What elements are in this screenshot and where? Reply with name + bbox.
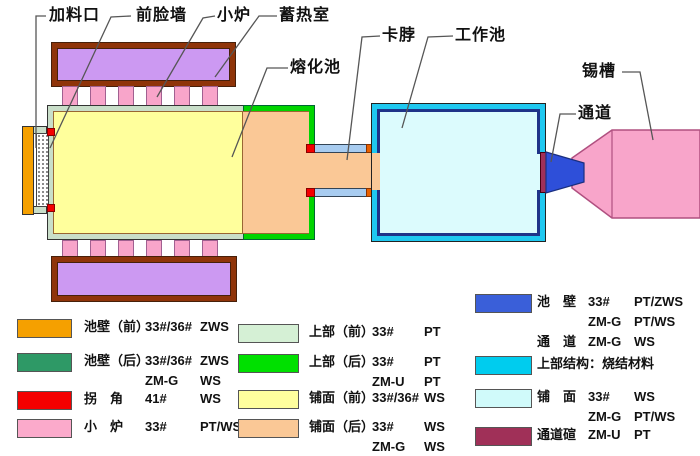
legend-name: 通 道 — [537, 332, 588, 352]
bottom-regenerator — [52, 257, 236, 301]
legend-grade: ZM-U — [588, 425, 634, 445]
port-top-5 — [174, 86, 190, 106]
legend-name: 上部（后） — [309, 352, 372, 372]
channel-arch-block — [540, 152, 547, 193]
legend-swatch — [238, 324, 299, 343]
legend-name: 池壁（前） — [84, 317, 145, 337]
legend-grade: 33# — [372, 417, 424, 437]
label-regenerator: 蓄热室 — [279, 7, 330, 25]
feed-connector-bottom — [33, 206, 47, 214]
label-tin-bath: 锡槽 — [582, 63, 616, 81]
port-bottom-5 — [174, 240, 190, 257]
working-tank-inlet-opening — [372, 153, 380, 190]
legend-name: 池 壁 — [537, 292, 588, 312]
legend-name — [84, 371, 145, 391]
port-bottom-1 — [62, 240, 78, 257]
melting-tank-paving-rear — [243, 111, 309, 234]
channel-shape — [546, 152, 584, 193]
port-top-1 — [62, 86, 78, 106]
legend-swatch — [17, 353, 72, 372]
port-bottom-6 — [202, 240, 218, 257]
legend-name: 铺面（前） — [309, 388, 372, 408]
legend-grade — [588, 354, 634, 374]
glass-furnace-diagram: 加料口 前脸墙 小炉 蓄热室 熔化池 卡脖 工作池 锡槽 通道 池壁（前） 33… — [0, 0, 700, 456]
legend-row-wt-paving: 铺 面 33# WS ZM-G PT/WS — [475, 387, 675, 427]
top-regenerator — [52, 43, 235, 86]
legend-row-superstructure: 上部结构：烧结材料 — [475, 354, 634, 375]
legend-type: PT/WS — [634, 407, 675, 427]
legend-row-upper-rear: 上部（后） 33# PT ZM-U PT — [238, 352, 441, 392]
label-melting-tank: 熔化池 — [290, 59, 341, 77]
legend-type: WS — [634, 332, 655, 352]
port-top-4 — [146, 86, 162, 106]
legend-swatch — [238, 419, 299, 438]
legend-row-small-furnace: 小 炉 33# PT/WS — [17, 417, 241, 438]
leader-tin-bath — [622, 72, 653, 140]
legend-name: 池壁（后） — [84, 351, 145, 371]
legend-name — [537, 407, 588, 427]
neck-wall-top — [314, 144, 368, 153]
legend-type: WS — [424, 417, 445, 437]
legend-row-paving-front: 铺面（前） 33#/36# WS — [238, 388, 445, 409]
port-bottom-3 — [118, 240, 134, 257]
legend-swatch — [238, 354, 299, 373]
port-top-6 — [202, 86, 218, 106]
legend-type: WS — [200, 389, 221, 409]
legend-swatch — [475, 427, 532, 446]
legend-name: 通道碹 — [537, 425, 588, 445]
legend-row-wt-tank-wall: 池 壁 33# PT/ZWS ZM-G PT/WS 通 道 ZM-G WS — [475, 292, 683, 352]
legend-type: WS — [424, 388, 445, 408]
legend-grade: ZM-G — [145, 371, 200, 391]
port-bottom-2 — [90, 240, 106, 257]
corner-block-neck-top — [306, 144, 315, 153]
legend-grade: 33#/36# — [372, 388, 424, 408]
legend-swatch — [17, 419, 72, 438]
corner-block-front-top — [47, 128, 55, 136]
corner-block-front-bottom — [47, 204, 55, 212]
port-top-3 — [118, 86, 134, 106]
legend-type: PT/ZWS — [634, 292, 683, 312]
legend-row-channel-arch: 通道碹 ZM-U PT — [475, 425, 651, 446]
legend-grade: 33#/36# — [145, 351, 200, 371]
legend-type: WS — [200, 371, 221, 391]
legend-name — [537, 312, 588, 332]
melting-tank-paving-front — [53, 111, 243, 234]
legend-row-corner: 拐 角 41# WS — [17, 389, 221, 410]
legend-type: ZWS — [200, 317, 229, 337]
legend-name: 小 炉 — [84, 417, 145, 437]
label-small-furnace: 小炉 — [217, 7, 251, 25]
legend-row-paving-rear: 铺面（后） 33# WS ZM-G WS — [238, 417, 445, 456]
legend-swatch — [475, 294, 532, 313]
legend-name — [309, 437, 372, 456]
legend-grade: ZM-G — [588, 407, 634, 427]
legend-grade: ZM-G — [372, 437, 424, 456]
port-bottom-4 — [146, 240, 162, 257]
feed-end-wall — [22, 126, 34, 215]
legend-row-tank-wall-rear: 池壁（后） 33#/36# ZWS ZM-G WS — [17, 351, 229, 391]
legend-type: PT — [634, 425, 651, 445]
legend-grade: 33# — [588, 387, 634, 407]
corner-block-neck-bottom — [306, 188, 315, 197]
legend-grade: 33# — [145, 417, 200, 437]
port-top-2 — [90, 86, 106, 106]
working-tank-interior — [380, 112, 537, 233]
legend-grade: 33# — [372, 322, 424, 342]
neck-wall-bottom — [314, 188, 368, 197]
legend-swatch — [17, 319, 72, 338]
legend-name: 铺 面 — [537, 387, 588, 407]
legend-swatch — [238, 390, 299, 409]
legend-swatch — [475, 389, 532, 408]
tin-bath-shape — [572, 130, 700, 218]
legend-type: PT/WS — [200, 417, 241, 437]
legend-grade: ZM-G — [588, 332, 634, 352]
legend-name: 上部结构：烧结材料 — [537, 354, 588, 374]
label-channel: 通道 — [578, 105, 612, 123]
legend-type: WS — [634, 387, 655, 407]
legend-row-upper-front: 上部（前） 33# PT — [238, 322, 441, 343]
leader-channel — [551, 114, 576, 162]
legend-grade: 33# — [372, 352, 424, 372]
legend-row-tank-wall-front: 池壁（前） 33#/36# ZWS — [17, 317, 229, 338]
legend-swatch — [475, 356, 532, 375]
feed-port-batch-area — [36, 133, 49, 207]
legend-grade: 33# — [588, 292, 634, 312]
legend-swatch — [17, 391, 72, 410]
legend-type: PT — [424, 322, 441, 342]
legend-name: 上部（前） — [309, 322, 372, 342]
label-working-tank: 工作池 — [455, 27, 506, 45]
legend-type: ZWS — [200, 351, 229, 371]
legend-name: 铺面（后） — [309, 417, 372, 437]
label-neck: 卡脖 — [382, 27, 416, 45]
legend-type: PT/WS — [634, 312, 675, 332]
legend-grade: 33#/36# — [145, 317, 200, 337]
legend-name: 拐 角 — [84, 389, 145, 409]
label-front-wall: 前脸墙 — [136, 7, 187, 25]
legend-type: PT — [424, 352, 441, 372]
legend-grade: ZM-G — [588, 312, 634, 332]
label-feed-port: 加料口 — [49, 7, 100, 25]
legend-grade: 41# — [145, 389, 200, 409]
neck-glass-channel — [308, 152, 378, 191]
legend-type: WS — [424, 437, 445, 456]
